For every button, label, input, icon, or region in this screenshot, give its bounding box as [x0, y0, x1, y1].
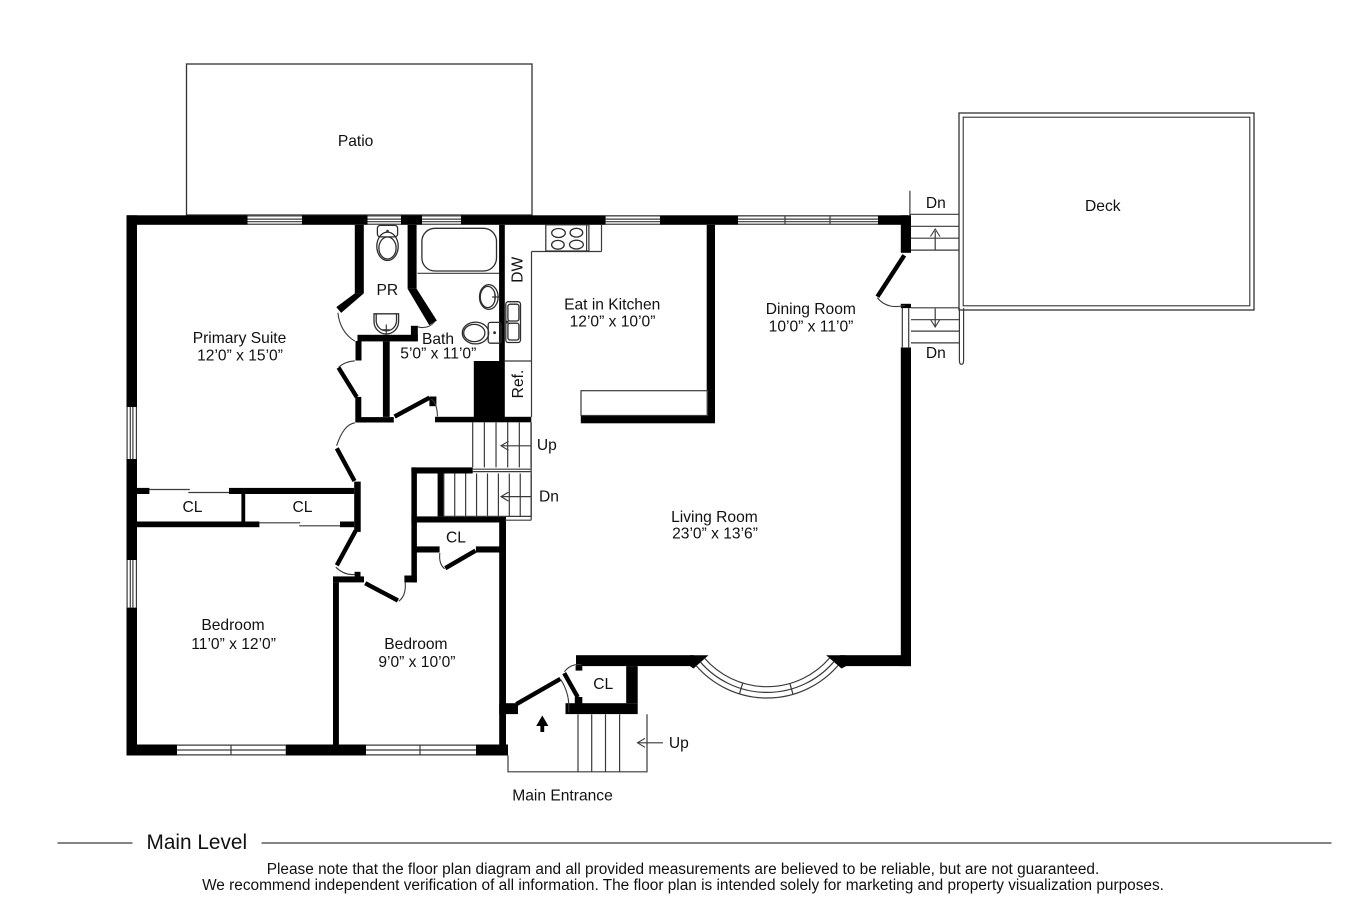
- svg-text:Bedroom: Bedroom: [201, 617, 264, 634]
- svg-text:Dn: Dn: [926, 345, 946, 362]
- svg-text:PR: PR: [376, 282, 398, 299]
- svg-text:Deck: Deck: [1085, 198, 1121, 215]
- svg-text:CL: CL: [183, 499, 203, 516]
- svg-text:Up: Up: [537, 437, 557, 454]
- svg-text:Up: Up: [669, 735, 689, 752]
- svg-text:DW: DW: [509, 256, 526, 282]
- svg-text:Ref.: Ref.: [510, 370, 527, 399]
- svg-text:Main Level: Main Level: [147, 831, 248, 854]
- svg-text:CL: CL: [446, 529, 466, 546]
- svg-text:Dining Room: Dining Room: [766, 301, 856, 318]
- svg-text:Patio: Patio: [338, 133, 374, 150]
- svg-text:CL: CL: [593, 676, 613, 693]
- svg-text:Main Entrance: Main Entrance: [512, 788, 613, 805]
- svg-text:11’0” x 12’0”: 11’0” x 12’0”: [191, 636, 276, 653]
- svg-text:5’0” x 11’0”: 5’0” x 11’0”: [400, 345, 476, 362]
- svg-text:12’0” x 10’0”: 12’0” x 10’0”: [570, 313, 656, 330]
- svg-text:10’0” x 11’0”: 10’0” x 11’0”: [769, 319, 854, 336]
- svg-text:9’0” x 10’0”: 9’0” x 10’0”: [378, 654, 455, 671]
- svg-text:Eat in Kitchen: Eat in Kitchen: [564, 297, 660, 314]
- svg-text:Dn: Dn: [926, 195, 946, 212]
- svg-text:CL: CL: [293, 499, 313, 516]
- svg-text:Primary Suite: Primary Suite: [193, 330, 287, 347]
- svg-text:We recommend independent verif: We recommend independent verification of…: [202, 877, 1164, 894]
- svg-text:Dn: Dn: [539, 489, 559, 506]
- svg-text:Please note that the floor pla: Please note that the floor plan diagram …: [267, 861, 1100, 878]
- svg-text:Bedroom: Bedroom: [384, 636, 447, 653]
- svg-text:23’0” x 13’6”: 23’0” x 13’6”: [672, 525, 758, 542]
- svg-text:12’0” x 15’0”: 12’0” x 15’0”: [197, 348, 283, 365]
- svg-text:Living Room: Living Room: [671, 509, 758, 526]
